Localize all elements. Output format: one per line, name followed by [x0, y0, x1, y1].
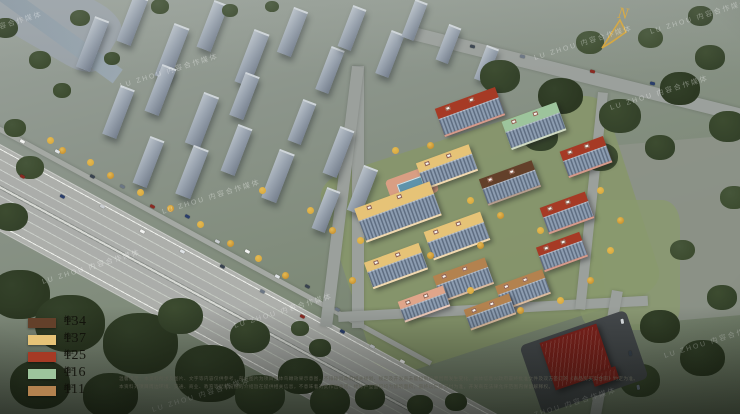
autumn-tree	[477, 242, 484, 249]
disclaimer-text: 温馨提示：本资料所涉及图片、文字等内容仅供参考，部分图片为项目整体鸟瞰效果示意图…	[119, 375, 737, 393]
building-number-tag	[543, 245, 549, 250]
autumn-tree	[259, 187, 266, 194]
city-tower	[132, 136, 164, 188]
building-number-tag	[433, 229, 439, 234]
disclaimer-line-1: 温馨提示：本资料所涉及图片、文字等内容仅供参考，部分图片为项目整体鸟瞰效果示意图…	[119, 375, 737, 383]
city-tower	[185, 92, 219, 148]
tree-cluster	[230, 320, 270, 353]
city-tower	[102, 85, 135, 139]
car	[245, 249, 251, 254]
building-number-tag	[509, 169, 515, 174]
autumn-tree	[197, 221, 204, 228]
tree-cluster	[707, 285, 737, 310]
compass-icon: N	[596, 2, 644, 52]
tree-cluster	[309, 339, 331, 357]
car	[305, 284, 311, 289]
building-number-tag	[395, 252, 401, 257]
tree-cluster	[480, 60, 520, 93]
city-tower	[220, 124, 252, 176]
tree-cluster	[53, 83, 71, 98]
autumn-tree	[167, 205, 174, 212]
compass-north-label: N	[616, 5, 631, 24]
autumn-tree	[497, 212, 504, 219]
building-number-tag	[547, 206, 553, 211]
autumn-tree	[427, 252, 434, 259]
tree-cluster	[720, 186, 740, 209]
autumn-tree	[617, 217, 624, 224]
legend-item-125: 约125m²	[28, 350, 178, 364]
city-tower	[315, 46, 345, 94]
autumn-tree	[517, 307, 524, 314]
building-number-tag	[567, 150, 573, 155]
tree-cluster	[407, 395, 433, 414]
tree-cluster	[680, 340, 725, 377]
aerial-rendering-stage: N LU ZHOU 内容合作媒体LU ZHOU 内容合作媒体LU ZHOU 内容…	[0, 0, 740, 414]
autumn-tree	[349, 277, 356, 284]
legend-item-134: 约134m²	[28, 316, 178, 330]
building-number-tag	[532, 111, 538, 116]
legend-swatch	[28, 335, 56, 345]
city-tower	[288, 99, 317, 145]
autumn-tree	[392, 147, 399, 154]
autumn-tree	[467, 287, 474, 294]
tree-cluster	[104, 52, 120, 65]
tree-cluster	[0, 18, 18, 39]
building-number-tag	[584, 143, 590, 148]
building-number-tag	[441, 274, 447, 279]
tree-cluster	[265, 1, 279, 12]
autumn-tree	[107, 172, 114, 179]
autumn-tree	[557, 297, 564, 304]
autumn-tree	[255, 255, 262, 262]
building-number-tag	[560, 239, 566, 244]
legend-swatch	[28, 386, 56, 396]
city-tower	[338, 5, 367, 51]
car	[120, 184, 126, 189]
autumn-tree	[357, 237, 364, 244]
autumn-tree	[227, 240, 234, 247]
tree-cluster	[70, 10, 90, 26]
tree-cluster	[222, 4, 238, 17]
car	[185, 214, 191, 219]
autumn-tree	[329, 227, 336, 234]
building-number-tag	[444, 106, 450, 111]
building-number-tag	[366, 205, 372, 210]
building-number-tag	[503, 284, 509, 289]
city-tower	[175, 145, 209, 199]
autumn-tree	[307, 207, 314, 214]
disclaimer-line-2: 本资料对项目周边环境、交通、商业、教育等配套设施的介绍旨在提供相关信息，不意味着…	[119, 383, 737, 391]
building-number-tag	[565, 199, 571, 204]
building-number-tag	[522, 277, 528, 282]
legend-swatch	[28, 352, 56, 362]
tree-cluster	[709, 111, 740, 142]
city-tower	[276, 7, 307, 57]
tree-cluster	[688, 6, 713, 27]
building-number-tag	[446, 153, 452, 158]
tree-cluster	[660, 72, 700, 105]
autumn-tree	[537, 227, 544, 234]
autumn-tree	[47, 137, 54, 144]
tree-cluster	[695, 45, 725, 70]
tree-cluster	[599, 99, 641, 133]
autumn-tree	[607, 247, 614, 254]
autumn-tree	[282, 272, 289, 279]
legend-swatch	[28, 318, 56, 328]
building-number-tag	[396, 194, 402, 199]
autumn-tree	[427, 142, 434, 149]
building-number-tag	[455, 221, 461, 226]
tree-cluster	[445, 393, 467, 411]
autumn-tree	[597, 187, 604, 194]
tree-cluster	[640, 310, 680, 343]
building-number-tag	[461, 266, 467, 271]
tree-cluster	[670, 240, 695, 261]
autumn-tree	[87, 159, 94, 166]
tree-cluster	[151, 0, 169, 14]
autumn-tree	[467, 197, 474, 204]
building-number-tag	[510, 119, 516, 124]
autumn-tree	[137, 189, 144, 196]
tree-cluster	[0, 203, 28, 232]
tree-cluster	[29, 51, 51, 69]
legend-item-137: 约137m²	[28, 333, 178, 347]
city-tower	[375, 30, 405, 78]
city-tower	[261, 149, 295, 203]
car	[650, 81, 655, 85]
tree-cluster	[291, 321, 309, 336]
building-number-tag	[487, 177, 493, 182]
city-tower	[229, 72, 259, 120]
building-number-tag	[424, 161, 430, 166]
tree-cluster	[4, 119, 26, 137]
legend-swatch	[28, 369, 56, 379]
city-tower	[144, 64, 176, 116]
building-number-tag	[469, 97, 475, 102]
building-number-tag	[373, 260, 379, 265]
tree-cluster	[645, 135, 675, 160]
autumn-tree	[587, 277, 594, 284]
